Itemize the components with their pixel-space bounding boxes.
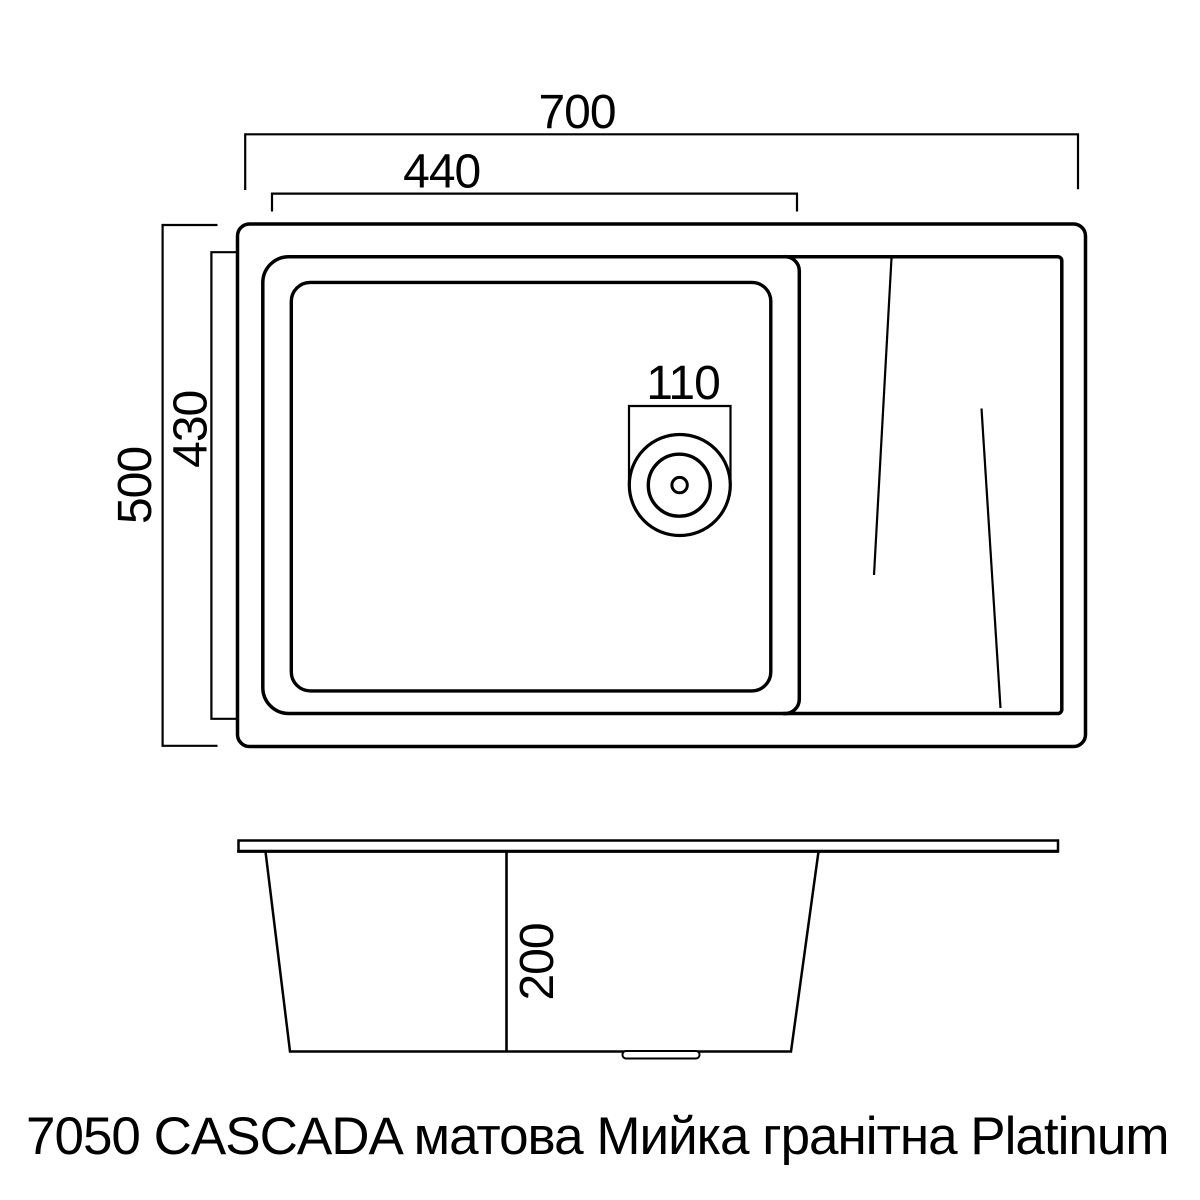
svg-text:700: 700 xyxy=(538,86,615,139)
svg-text:200: 200 xyxy=(511,923,564,1000)
svg-text:110: 110 xyxy=(646,357,720,410)
svg-text:430: 430 xyxy=(165,391,218,468)
svg-text:7050 CASCADA матова Мийка гран: 7050 CASCADA матова Мийка гранітна Plati… xyxy=(26,1107,1169,1166)
svg-text:440: 440 xyxy=(403,146,480,199)
svg-text:500: 500 xyxy=(109,447,162,524)
